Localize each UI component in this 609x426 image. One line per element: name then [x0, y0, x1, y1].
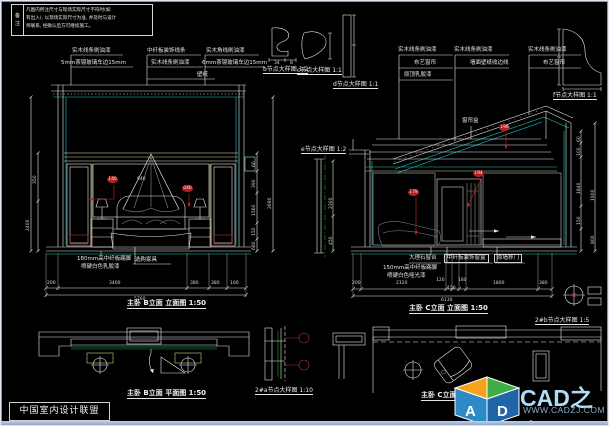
dimension-label: 3400: [109, 281, 120, 286]
wall-section-detail-a: [265, 326, 365, 381]
detail-marker: 179: [408, 189, 419, 196]
logo-letter-a: A: [465, 403, 476, 420]
annotation-label: 中纤板装饰线条: [147, 48, 186, 55]
annotation-label: 原顶乳胶漆: [404, 72, 432, 79]
right-elevation-title: 主卧 C立面 立面图 1:50: [409, 304, 488, 314]
note-text: 凡图内所注尺寸与现场实际尺寸不符时(如 有出入), 以现场实际尺寸为准, 并及时…: [24, 5, 152, 35]
dimension-label: 380: [211, 281, 220, 286]
annotation-label: 壁纸: [197, 72, 208, 79]
dimension-label: 180: [458, 278, 467, 283]
left-plan-title: 主卧 B立面 平面图 1:50: [127, 389, 206, 399]
detail-marker: 194: [473, 170, 484, 177]
dimension-label: 800: [591, 235, 596, 244]
annotation-label: 实木线条刷油漆: [151, 60, 190, 67]
annotation-label: 大理石窗台: [409, 255, 437, 262]
note-line: 师联系, 经确认后方可继续施工。: [26, 23, 150, 31]
note-tab: 备 注: [12, 5, 24, 35]
dimension-label: 450: [329, 236, 334, 245]
note-tab-char: 备: [15, 13, 20, 19]
annotation-label: 实木角线刷油漆: [206, 48, 245, 55]
note-tab-char: 注: [15, 21, 20, 27]
annotation-label: 5mm茶镜玻璃车边15mm: [61, 60, 126, 67]
dimension-label: 150: [252, 227, 257, 236]
detail-marker: 140: [107, 176, 118, 183]
window-bottom-edge: [1, 421, 608, 425]
detail-title-d: d节点大样图 1:1: [333, 81, 378, 89]
cad-drawing-sheet: 备 注 凡图内所注尺寸与现场实际尺寸不符时(如 有出入), 以现场实际尺寸为准,…: [0, 0, 609, 426]
cadzj-url-text: WWW.CADZJ.COM: [523, 405, 605, 415]
dimension-label: 680: [252, 241, 257, 250]
detail-title-c: c节点大样图 1:1: [297, 67, 342, 75]
dimension-label: 1560: [252, 205, 257, 216]
annotation-label: 喷硬白色乳胶漆: [81, 264, 120, 271]
detail-marker: 040: [182, 185, 193, 192]
annotation-label: 墙面壁纸收边线: [470, 60, 509, 67]
annotation-label: 180mm高中纤板踢脚: [77, 256, 131, 263]
annotation-label: 选购家具: [135, 257, 157, 264]
annotation-label: 150mm高中纤板踢脚: [383, 265, 437, 272]
dimension-label: 2400: [26, 220, 31, 231]
dimension-label: 60: [577, 136, 582, 142]
dimension-label: 100: [230, 281, 239, 286]
dimension-label: 60: [252, 161, 257, 167]
dimension-label: 380: [539, 281, 548, 286]
annotation-label: 实木线条刷油漆: [72, 48, 111, 55]
dimension-label: 940: [137, 177, 146, 182]
design-union-watermark: 中国室内设计联盟: [9, 402, 110, 421]
dimension-label: 380: [190, 281, 199, 286]
dimension-label: 100: [577, 147, 582, 156]
dimension-label: 120: [436, 278, 445, 283]
annotation-label: 6mm茶镜玻璃车边15mm: [202, 60, 267, 67]
annotation-label: 窗帘盒: [462, 118, 479, 125]
dimension-total: 2690: [268, 198, 273, 209]
detail-marker: 196: [499, 124, 510, 131]
note-line: 凡图内所注尺寸与现场实际尺寸不符时(如: [26, 7, 150, 15]
note-line: 有出入), 以现场实际尺寸为准, 并及时与设计: [26, 15, 150, 23]
general-notes-box: 备 注 凡图内所注尺寸与现场实际尺寸不符时(如 有出入), 以现场实际尺寸为准,…: [11, 4, 153, 36]
annotation-label: 原墙移门: [494, 254, 522, 263]
dimension-label: 1800: [493, 281, 504, 286]
detail-a-title: 2#a节点大样图 1:10: [255, 387, 313, 395]
dimension-label: 1900: [591, 190, 596, 201]
cadzj-brand-text: CAD之家: [520, 379, 608, 426]
logo-letter-d: D: [497, 403, 508, 420]
annotation-label: 中纤板装饰窗盒: [444, 254, 489, 263]
annotation-label: 实木线条刷油漆: [528, 47, 567, 54]
dimension-total: 6130: [441, 298, 452, 303]
dimension-label: 2300: [329, 198, 334, 209]
dimension-label: 350: [33, 175, 38, 184]
dimension-label: 2120: [396, 281, 407, 286]
annotation-label: 布艺窗帘: [543, 60, 565, 67]
detail-title-e: e节点大样图 1:2: [301, 146, 346, 154]
annotation-label: 实木线条刷油漆: [398, 47, 437, 54]
left-plan-drawing: [39, 328, 249, 374]
dimension-label: 150: [577, 216, 582, 225]
annotation-label: 喷硬白色哑光漆: [387, 273, 426, 280]
dimension-label: 200: [47, 281, 56, 286]
detail-title-f: f节点大样图 1:1: [553, 92, 597, 100]
dimension-label: 200: [352, 281, 361, 286]
annotation-label: 实木线条刷油漆: [454, 47, 493, 54]
dimension-total: 5760: [134, 297, 145, 302]
detail-b-title: 2#b节点大样图 1:5: [535, 317, 589, 325]
dimension-label: 1840: [577, 183, 582, 194]
dimension-label: 390: [252, 179, 257, 188]
annotation-label: 布艺窗帘: [414, 60, 436, 67]
dimension-label: 150: [447, 286, 456, 291]
